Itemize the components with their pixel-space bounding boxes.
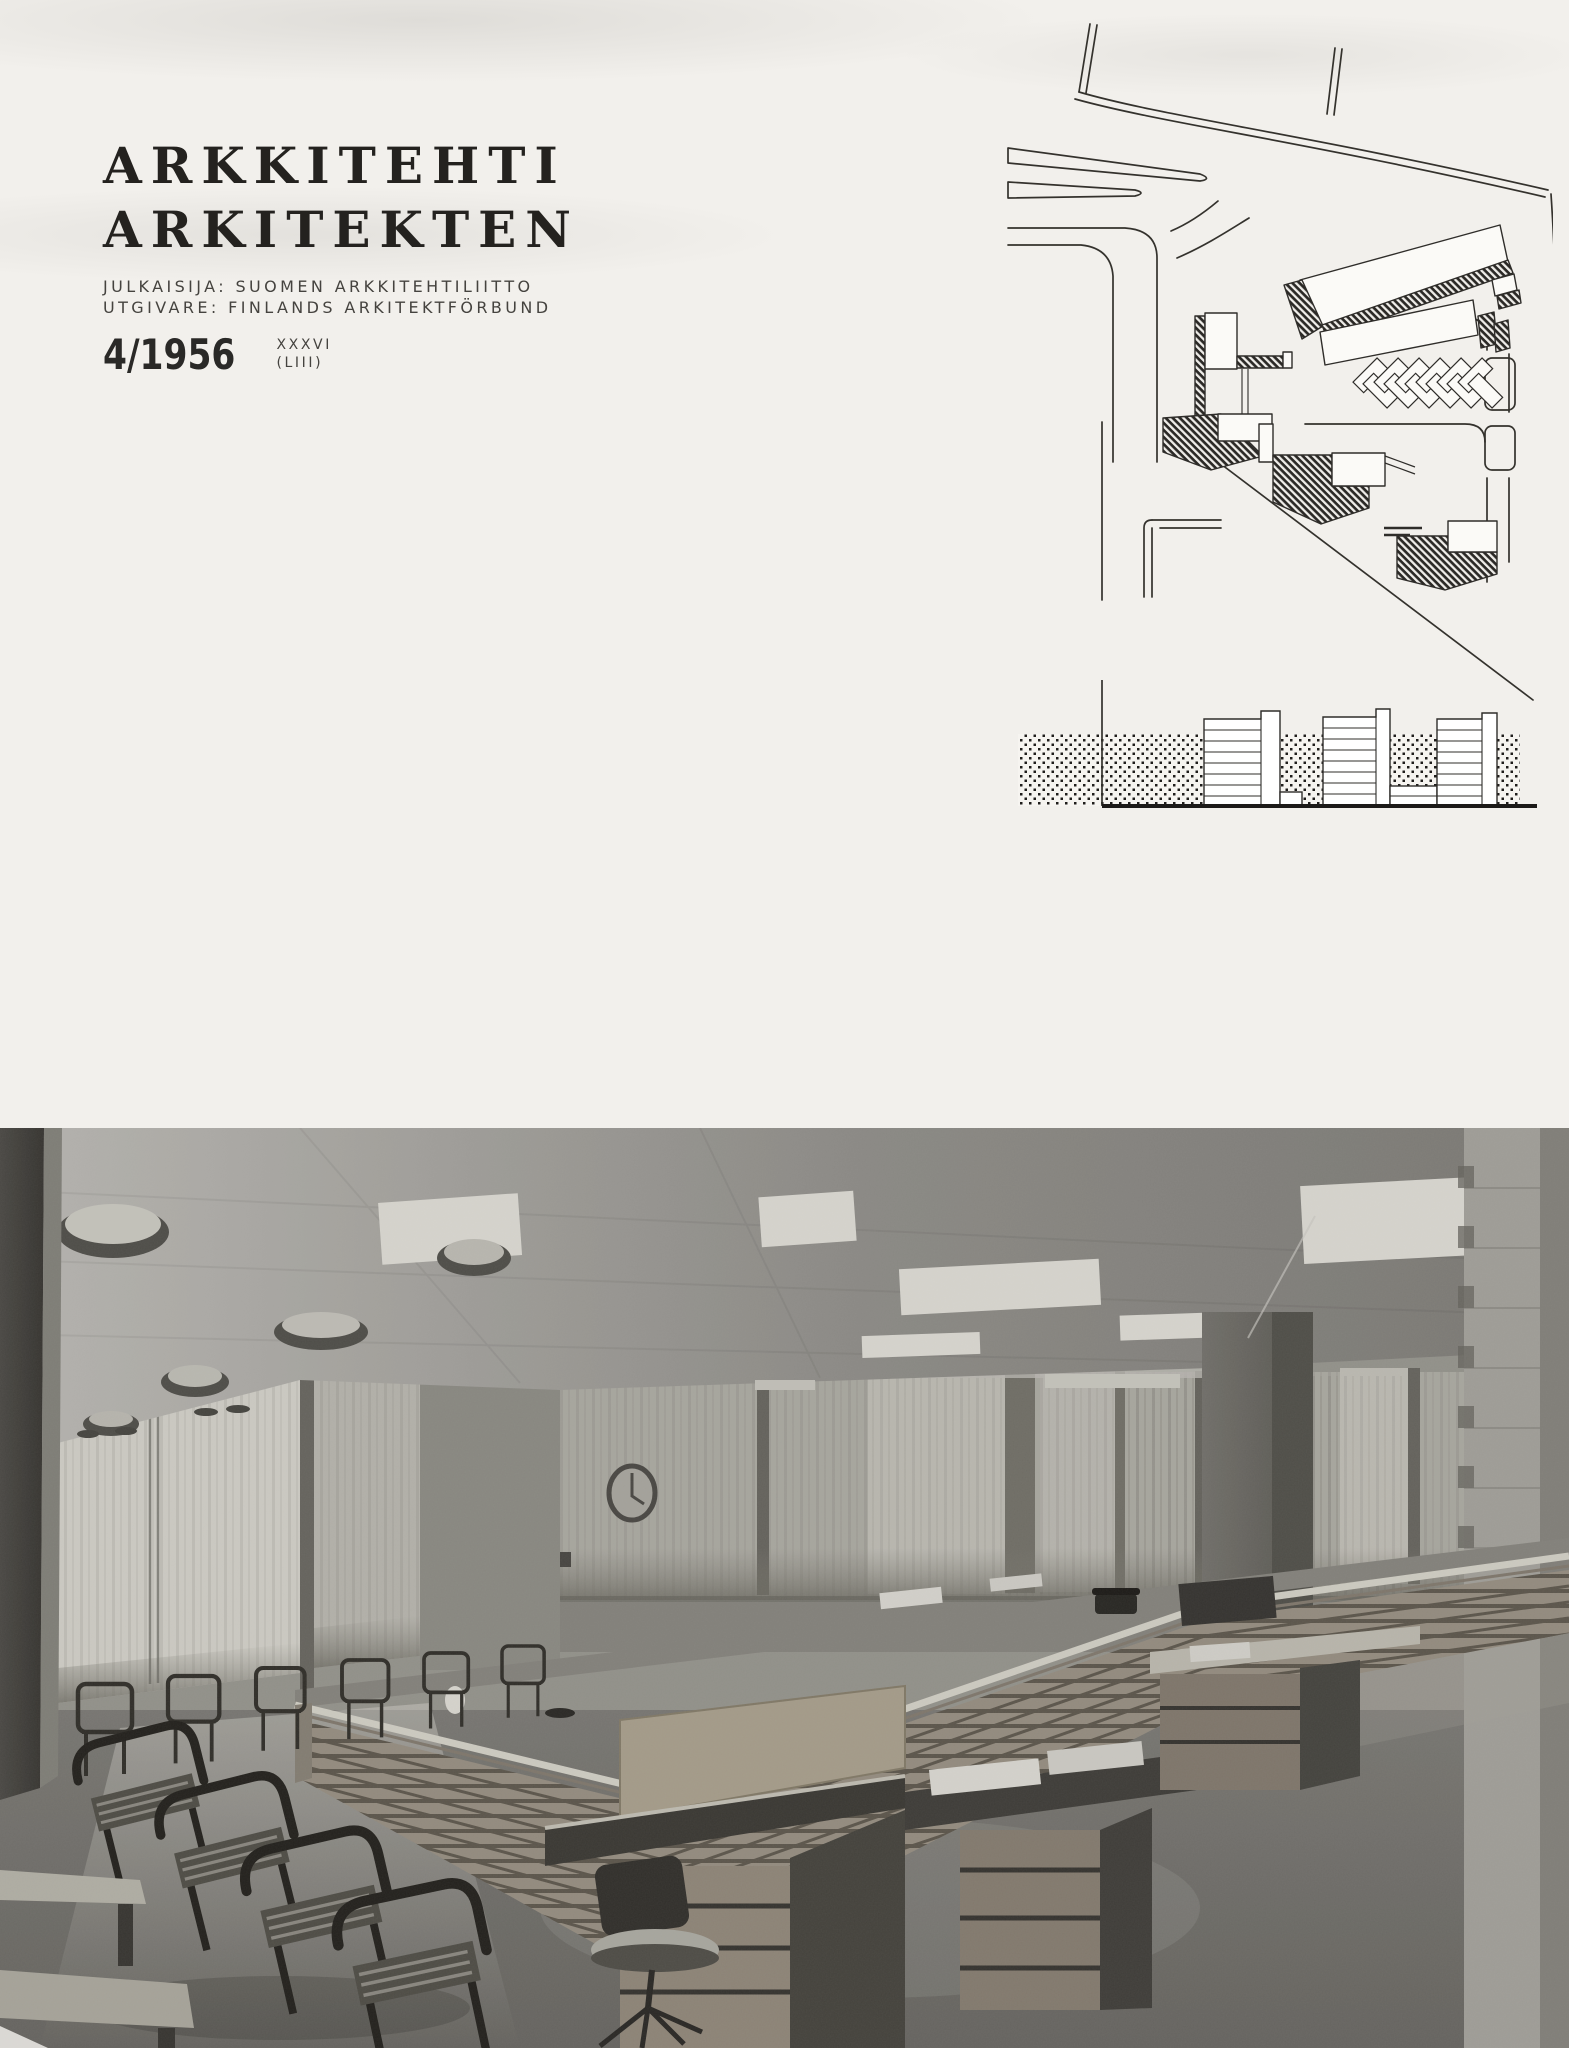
issue-number: 4/1956 — [103, 333, 235, 377]
title-line-2: ARKITEKTEN — [103, 198, 580, 262]
title-line-1: ARKKITEHTI — [103, 134, 580, 198]
volume-series: (LIII) — [276, 354, 331, 372]
plan-buildings — [1163, 225, 1521, 590]
magazine-cover: ARKKITEHTI ARKITEKTEN JULKAISIJA: SUOMEN… — [0, 0, 1569, 2048]
publisher-block: JULKAISIJA: SUOMEN ARKKITEHTILIITTO UTGI… — [103, 276, 580, 318]
plan-elevation — [1018, 680, 1537, 806]
publisher-line-1: JULKAISIJA: SUOMEN ARKKITEHTILIITTO — [103, 276, 580, 297]
volume-roman: XXXVI — [276, 336, 331, 354]
site-plan-drawing — [1005, 22, 1553, 822]
cover-photo — [0, 1128, 1569, 2048]
site-plan-figure — [1005, 22, 1553, 822]
magazine-title: ARKKITEHTI ARKITEKTEN — [103, 134, 580, 262]
plan-herringbone-row — [1353, 358, 1503, 408]
publisher-line-2: UTGIVARE: FINLANDS ARKITEKTFÖRBUND — [103, 297, 580, 318]
masthead: ARKKITEHTI ARKITEKTEN JULKAISIJA: SUOMEN… — [103, 134, 580, 377]
cover-photo-graphic — [0, 1128, 1569, 2048]
issue-volume: XXXVI (LIII) — [276, 333, 331, 372]
issue-block: 4/1956 XXXVI (LIII) — [103, 333, 580, 377]
film-grain — [0, 1128, 1569, 2048]
